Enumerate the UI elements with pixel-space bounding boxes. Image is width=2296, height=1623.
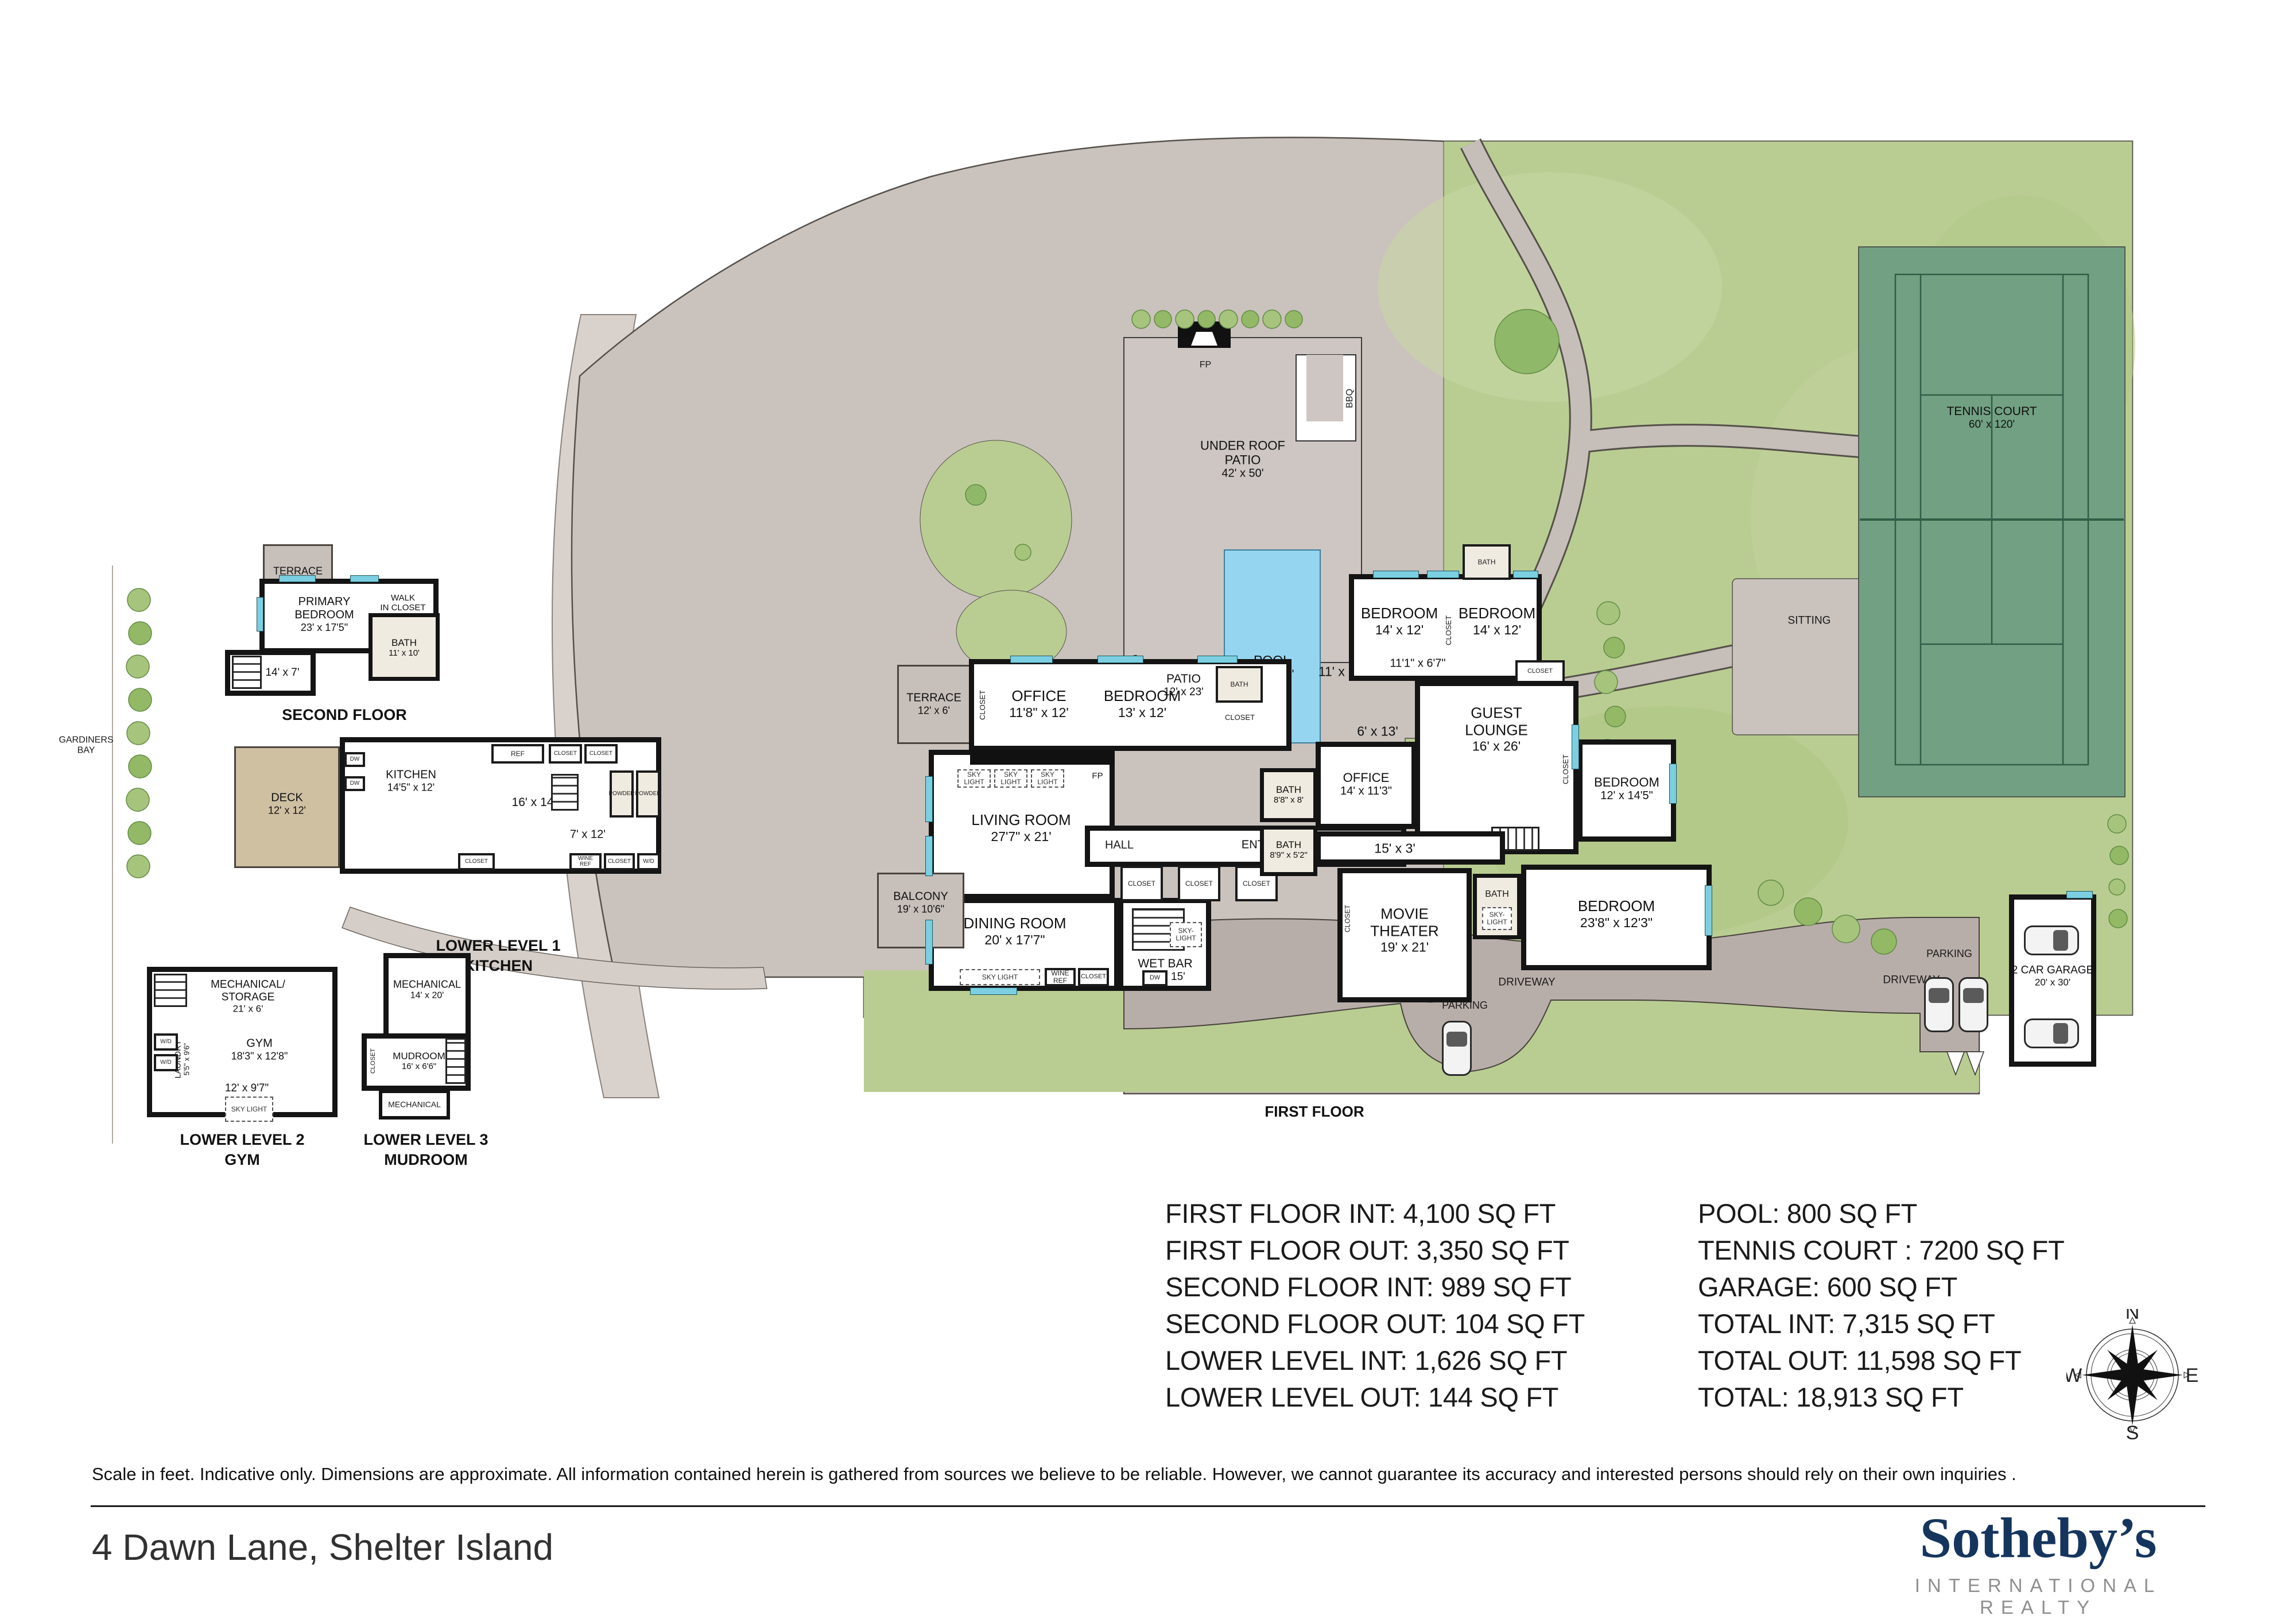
window [1010,656,1053,663]
closet-box: CLOSET [604,853,635,870]
car-icon [2024,1018,2079,1048]
sf-primary-label: PRIMARY BEDROOM 23' x 17'5" [294,595,354,633]
fp-label: FP [1092,772,1103,781]
window [257,597,263,632]
stat-line: POOL: 800 SQ FT [1698,1195,2064,1232]
driveway-label: DRIVEWAY [1498,977,1555,989]
fp-label: FP [1200,360,1211,370]
compass-w: W [2066,1365,2082,1386]
guest-lounge-label: GUEST LOUNGE 16' x 26' [1465,704,1528,753]
ll3-mudroom-label: MUDROOM 16' x 6'6" [393,1051,445,1071]
living-room-label: LIVING ROOM 27'7" x 21' [971,812,1071,844]
powder-room: POWDER [636,770,660,818]
parking-label: PARKING [1926,948,1972,960]
closet-box: CLOSET [549,744,582,764]
office-west-label: OFFICE 11'8" x 12' [1009,688,1068,720]
hall-ne-dims: 11'1" x 6'7" [1390,657,1445,671]
sitting-label: SITTING [1788,615,1831,627]
office-east-label: OFFICE 14' x 11'3" [1340,770,1392,798]
stat-line: TOTAL OUT: 11,598 SQ FT [1698,1342,2064,1379]
wd-box: W/D [154,1054,178,1071]
ll3-caption: LOWER LEVEL 3 MUDROOM [363,1130,488,1170]
hall-label: HALL [1105,839,1134,851]
stat-line: FIRST FLOOR INT: 4,100 SQ FT [1165,1195,1585,1232]
sf-hall-dims: 14' x 7' [265,667,299,679]
skylight-box: SKY LIGHT [994,769,1027,788]
dw-box: DW [1142,970,1168,986]
ll2-dims-12x97: 12' x 9'7" [225,1082,269,1095]
skylight-box: SKY LIGHT [960,969,1040,985]
garage-label: 2 CAR GARAGE 20' x 30' [2012,964,2094,987]
window [1097,656,1143,663]
bay-bushes [126,588,152,878]
closet-label: CLOSET [1562,754,1570,784]
compass-e: E [2186,1365,2198,1386]
ll2-caption: LOWER LEVEL 2 GYM [180,1130,304,1170]
stat-line: TOTAL INT: 7,315 SQ FT [1698,1306,2064,1342]
window [279,575,316,582]
bath-e1-label: BATH 8'8" x 8' [1274,784,1304,805]
window [1427,571,1459,578]
closet-label: CLOSET [979,690,987,720]
window [925,920,933,964]
window [1705,885,1712,936]
bedroom-east-label: BEDROOM 12' x 14'5" [1594,775,1659,803]
under-roof-patio-label: UNDER ROOF PATIO 42' x 50' [1200,439,1285,481]
closet-label: CLOSET [1344,905,1351,932]
bedroom-south-label: BEDROOM 23'8" x 12'3" [1578,898,1655,930]
skylight-box: SKY LIGHT [957,769,991,788]
sothebys-subtitle: INTERNATIONAL REALTY [1876,1575,2201,1618]
bath-north: BATH [1463,544,1511,580]
first-floor-caption: FIRST FLOOR [1265,1102,1364,1122]
skylight-box: SKY- LIGHT [1482,907,1512,930]
ll2-mech-label: MECHANICAL/ STORAGE 21' x 6' [211,979,285,1015]
stat-line: LOWER LEVEL OUT: 144 SQ FT [1165,1379,1585,1416]
skylight-box: SKY LIGHT [1031,769,1064,788]
stats-right: POOL: 800 SQ FT TENNIS COURT : 7200 SQ F… [1698,1195,2064,1415]
stat-line: GARAGE: 600 SQ FT [1698,1269,2064,1306]
car-icon [1924,977,1954,1032]
car-icon [1958,977,1988,1032]
window [350,575,379,582]
stairs [232,656,262,689]
wine-ref-box: WINE REF [1045,968,1076,986]
disclaimer-text: Scale in feet. Indicative only. Dimensio… [92,1464,2216,1485]
sothebys-wordmark: Sotheby’s [1876,1508,2201,1568]
closet-label: CLOSET [1445,615,1453,645]
dw-box: DW [344,776,365,791]
floor-plan-sheet: GARDINERS BAY BEACH UNDER ROOF PATIO 42'… [0,0,2296,1623]
sothebys-logo: Sotheby’s INTERNATIONAL REALTY [1876,1508,2201,1618]
bbq-counter-notch [1306,355,1343,421]
bath-west: BATH [1216,666,1263,703]
closet-box: CLOSET [1515,660,1565,683]
closet-box: CLOSET [1178,866,1220,901]
skylight-box: SKY LIGHT [225,1097,273,1122]
stat-line: SECOND FLOOR OUT: 104 SQ FT [1165,1306,1585,1342]
stat-line: FIRST FLOOR OUT: 3,350 SQ FT [1165,1232,1585,1269]
closet-label: CLOSET [1225,714,1255,722]
window [1513,571,1538,578]
wd-box: W/D [154,1033,178,1051]
ll1-dims-7x12: 7' x 12' [570,828,606,842]
skylight-box: SKY- LIGHT [1170,922,1202,947]
stairs [551,774,579,811]
window [1197,656,1238,663]
ll2-gym-label: GYM 18'3" x 12'8" [231,1037,288,1062]
terrace-dims: 6' x 13' [1357,724,1398,739]
ll1-kitchen-label: KITCHEN 14'5" x 12' [386,768,436,793]
ref-box: REF [491,744,544,764]
fireplace-band [970,750,1115,765]
window [970,987,1017,995]
closet-label: CLOSET [370,1048,377,1074]
stat-line: TENNIS COURT : 7200 SQ FT [1698,1232,2064,1269]
window [925,836,933,876]
second-floor-caption: SECOND FLOOR [282,705,407,725]
stats-left: FIRST FLOOR INT: 4,100 SQ FT FIRST FLOOR… [1165,1195,1585,1415]
powder-room: POWDER [610,770,634,818]
lawn-pocket [920,440,1072,599]
ll1-deck-label: DECK 12' x 12' [268,791,306,816]
window [1373,571,1419,578]
patio-label: PATIO 12' x 23' [1163,672,1204,699]
closet-box: CLOSET [1120,866,1163,901]
closet-box: CLOSET [458,853,495,870]
dw-box: DW [344,752,365,767]
divider-rule [91,1505,2205,1507]
window [925,776,933,822]
dining-room-label: DINING ROOM 20' x 17'7" [963,915,1066,947]
bath-e2-label: BATH 8'9" x 5'2" [1270,839,1308,860]
wine-ref-box: WINE REF [569,853,602,870]
wd-box: W/D [637,853,660,870]
bedroom-n2-label: BEDROOM 14' x 12' [1459,605,1535,637]
stairs [154,974,187,1007]
balcony-label: BALCONY 19' x 10'6" [893,890,948,915]
stat-line: SECOND FLOOR INT: 989 SQ FT [1165,1269,1585,1306]
car-icon [1442,1021,1472,1076]
window [1572,725,1579,769]
bedroom-n1-label: BEDROOM 14' x 12' [1361,605,1438,637]
compass-n: N [2126,1309,2140,1323]
corridor-dims: 15' x 3' [1374,841,1415,857]
stairs [445,1038,466,1084]
bbq-label: BBQ [1345,389,1355,408]
terrace-west-label: TERRACE 12' x 6' [906,691,961,716]
window [2066,891,2093,898]
movie-theater-label: MOVIE THEATER 19' x 21' [1370,905,1438,954]
closet-box: CLOSET [1078,968,1109,986]
bath-label: BATH [1485,889,1508,900]
property-address: 4 Dawn Lane, Shelter Island [92,1526,553,1568]
ll3-mech2-label: MECHANICAL [388,1100,441,1109]
ll1-dims-16x14: 16' x 14' [512,796,556,809]
ll3-mech-label: MECHANICAL 14' x 20' [393,979,461,1001]
car-icon [2024,925,2079,955]
stat-line: LOWER LEVEL INT: 1,626 SQ FT [1165,1342,1585,1379]
compass-rose-icon: N E S W [2066,1309,2198,1441]
tennis-court-label: TENNIS COURT 60' x 120' [1946,405,2037,431]
closet-box: CLOSET [584,744,618,764]
compass-s: S [2126,1422,2139,1441]
window [1669,764,1677,804]
sf-bath-label: BATH 11' x 10' [389,637,420,658]
gardiners-bay-label: GARDINERS BAY [59,735,113,755]
stat-line: TOTAL: 18,913 SQ FT [1698,1379,2064,1416]
